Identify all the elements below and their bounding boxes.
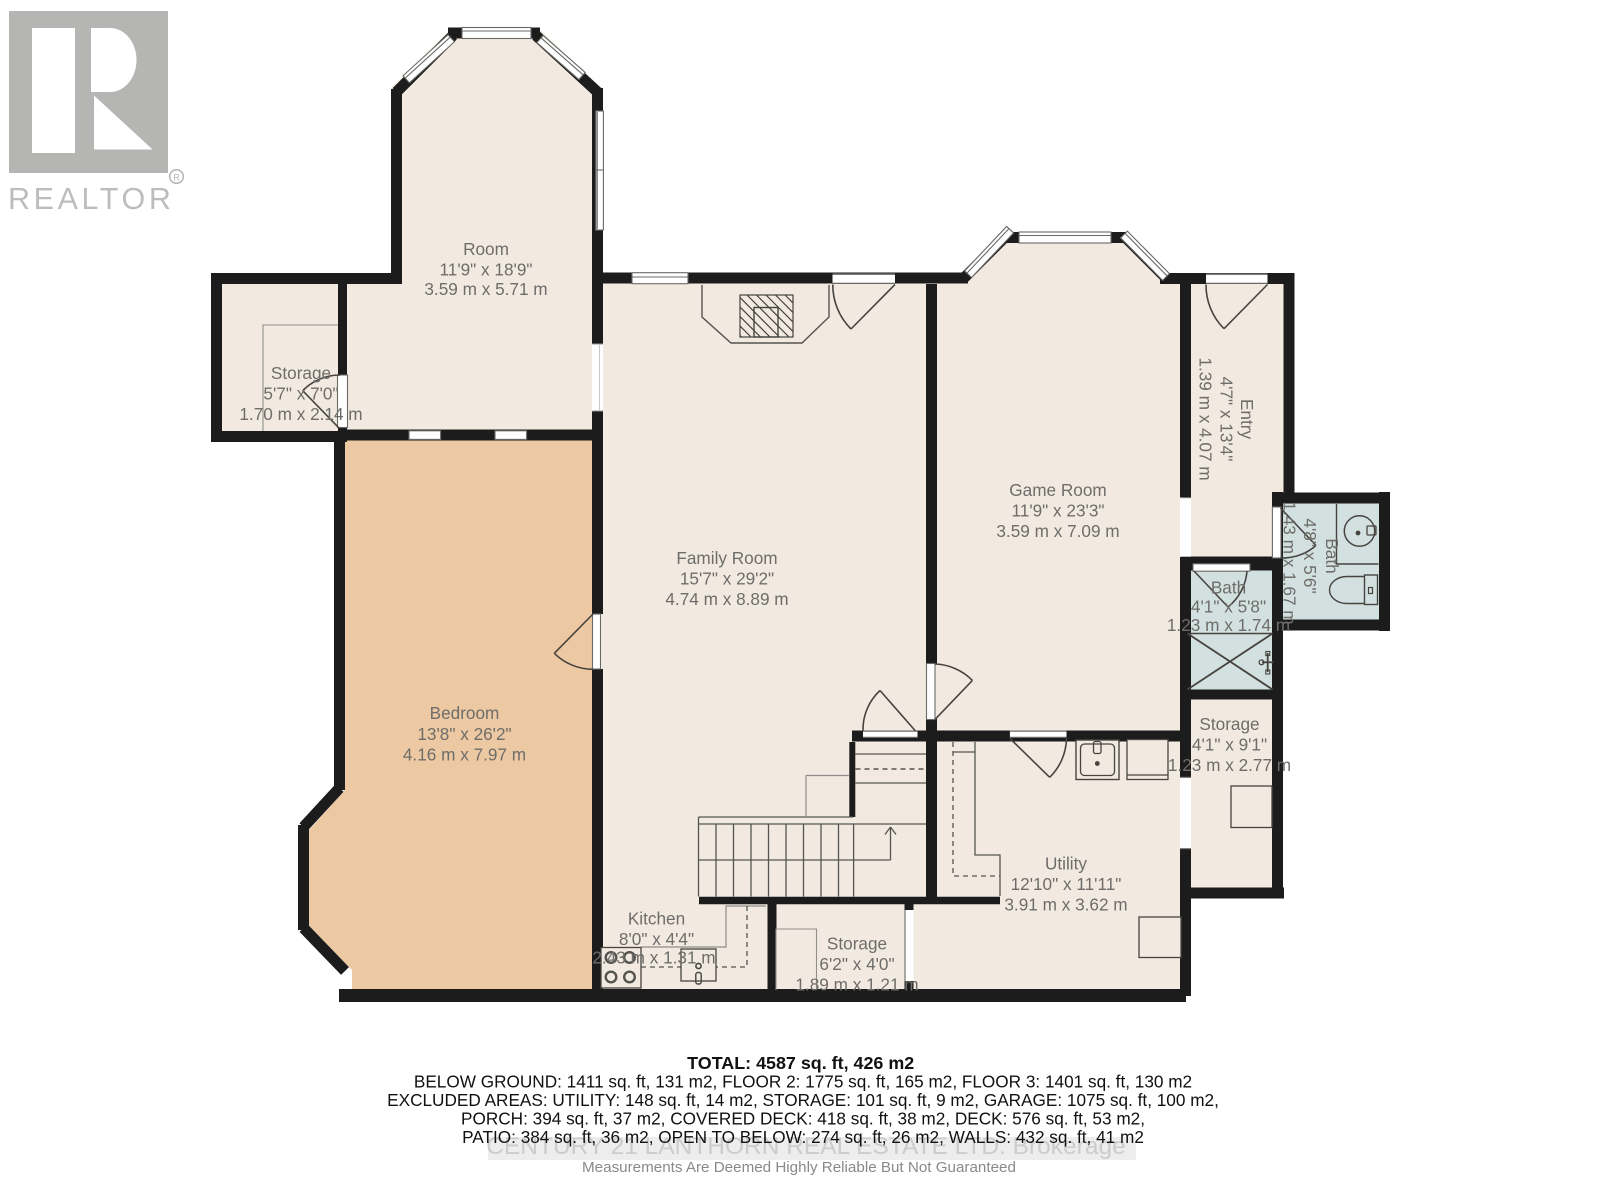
svg-text:12'10" x 11'11": 12'10" x 11'11" [1011,874,1122,894]
svg-text:3.59 m x 5.71 m: 3.59 m x 5.71 m [424,279,547,299]
svg-text:4.16 m x 7.97 m: 4.16 m x 7.97 m [403,745,526,765]
svg-text:R: R [173,173,180,183]
svg-text:Utility: Utility [1045,854,1087,874]
svg-text:EXCLUDED AREAS: UTILITY: 148 s: EXCLUDED AREAS: UTILITY: 148 sq. ft, 14 … [387,1090,1219,1110]
svg-text:Bath: Bath [1211,578,1246,598]
svg-text:4'1" x 9'1": 4'1" x 9'1" [1192,735,1267,755]
svg-text:Storage: Storage [1199,714,1259,734]
svg-text:5'7" x 7'0": 5'7" x 7'0" [263,384,338,404]
svg-text:4'1" x 5'8": 4'1" x 5'8" [1191,597,1266,617]
svg-text:1.89 m x 1.21 m: 1.89 m x 1.21 m [795,975,918,995]
svg-text:Game Room: Game Room [1009,480,1106,500]
svg-text:1.43 m x 1.67 m: 1.43 m x 1.67 m [1280,501,1300,624]
svg-text:Entry: Entry [1237,399,1257,440]
svg-text:PORCH: 394 sq. ft, 37 m2, COVE: PORCH: 394 sq. ft, 37 m2, COVERED DECK: … [461,1109,1145,1129]
svg-text:11'9" x 18'9": 11'9" x 18'9" [440,260,533,280]
svg-text:BELOW GROUND: 1411 sq. ft, 131: BELOW GROUND: 1411 sq. ft, 131 m2, FLOOR… [414,1072,1192,1092]
svg-text:3.91 m x 3.62 m: 3.91 m x 3.62 m [1004,895,1127,915]
svg-text:4'8" x 5'6": 4'8" x 5'6" [1300,518,1320,593]
svg-text:11'9" x 23'3": 11'9" x 23'3" [1012,501,1105,521]
svg-text:13'8" x 26'2": 13'8" x 26'2" [417,724,511,744]
svg-text:2.43 m x 1.31 m: 2.43 m x 1.31 m [592,948,715,968]
svg-text:Bath: Bath [1322,538,1342,573]
svg-text:1.70 m x 2.14 m: 1.70 m x 2.14 m [239,404,362,424]
svg-text:Storage: Storage [827,934,887,954]
svg-text:6'2" x 4'0": 6'2" x 4'0" [819,954,894,974]
svg-text:REALTOR: REALTOR [8,182,174,216]
svg-text:15'7" x 29'2": 15'7" x 29'2" [680,569,774,589]
svg-text:1.23 m x 2.77 m: 1.23 m x 2.77 m [1168,755,1291,775]
svg-text:Kitchen: Kitchen [628,909,685,929]
svg-text:TOTAL: 4587 sq. ft, 426 m2: TOTAL: 4587 sq. ft, 426 m2 [687,1053,914,1073]
svg-text:PATIO: 384 sq. ft, 36 m2, OPEN: PATIO: 384 sq. ft, 36 m2, OPEN TO BELOW:… [462,1127,1144,1147]
svg-text:1.39 m x 4.07 m: 1.39 m x 4.07 m [1196,357,1216,480]
svg-text:Bedroom: Bedroom [430,703,500,723]
svg-text:3.59 m x 7.09 m: 3.59 m x 7.09 m [996,521,1119,541]
svg-text:4.74 m x 8.89 m: 4.74 m x 8.89 m [665,589,788,609]
svg-text:1.23 m x 1.74 m: 1.23 m x 1.74 m [1167,615,1290,635]
svg-text:Room: Room [463,239,509,259]
svg-text:8'0" x 4'4": 8'0" x 4'4" [619,929,694,949]
svg-text:Storage: Storage [271,363,331,383]
svg-text:Family Room: Family Room [676,548,777,568]
svg-text:4'7" x 13'4": 4'7" x 13'4" [1217,377,1237,462]
svg-text:Measurements Are Deemed Highly: Measurements Are Deemed Highly Reliable … [582,1159,1016,1176]
